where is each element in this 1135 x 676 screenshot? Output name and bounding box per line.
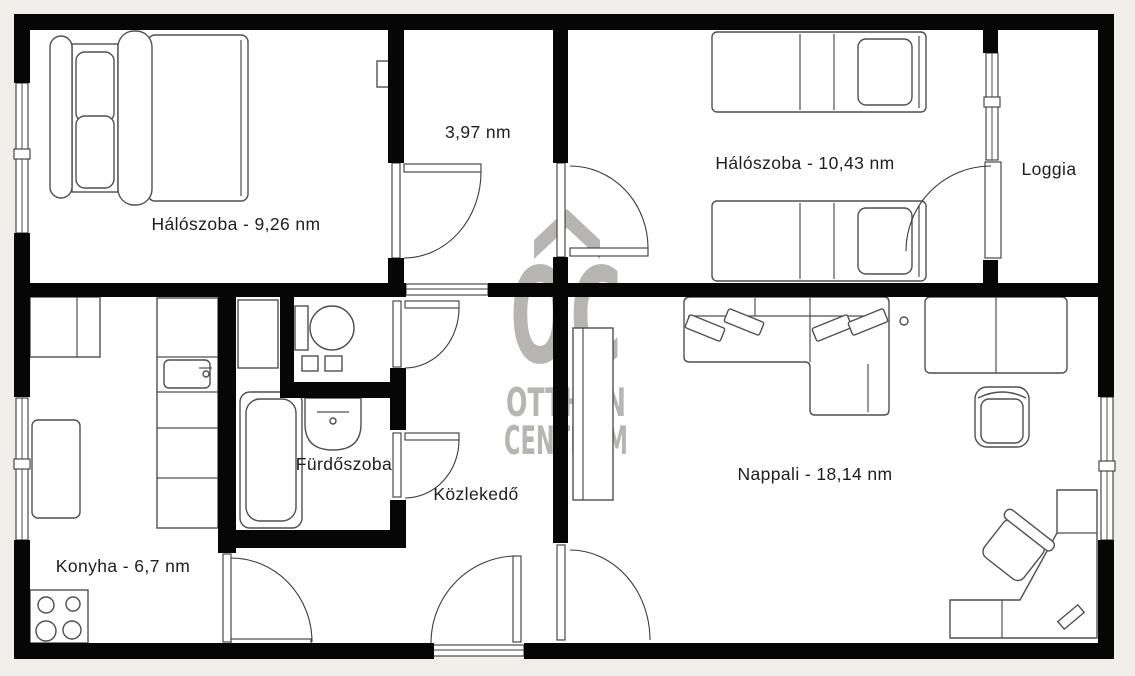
window <box>14 83 30 233</box>
floorplan-image: OC OTTHON CENTRUM <box>0 0 1135 676</box>
bath-sink-icon <box>305 398 361 450</box>
bathtub-icon <box>240 392 302 528</box>
room-label-corridor: Közlekedő <box>433 484 518 504</box>
kitchen-table-icon <box>32 420 80 518</box>
armchair-icon <box>975 387 1029 447</box>
room-label-inner-hall: 3,97 nm <box>445 122 511 142</box>
table-icon <box>925 297 1067 373</box>
window <box>14 398 30 540</box>
room-label-living-room: Nappali - 18,14 nm <box>737 464 892 484</box>
room-label-loggia: Loggia <box>1022 159 1077 179</box>
room-label-bedroom-1: Hálószoba - 9,26 nm <box>151 214 320 234</box>
room-label-bathroom: Fürdőszoba <box>296 454 392 474</box>
entrance-threshold <box>433 645 524 656</box>
room-label-bedroom-2: Hálószoba - 10,43 nm <box>715 153 894 173</box>
double-bed-icon <box>50 31 248 205</box>
single-bed-icon <box>712 201 926 281</box>
window <box>984 53 1000 160</box>
window <box>1099 397 1115 540</box>
single-bed-icon <box>712 32 926 112</box>
passage-threshold <box>406 284 488 295</box>
wardrobe-icon <box>573 328 613 500</box>
room-label-kitchen: Konyha - 6,7 nm <box>56 556 190 576</box>
floorplan-svg: OC OTTHON CENTRUM <box>0 0 1135 676</box>
